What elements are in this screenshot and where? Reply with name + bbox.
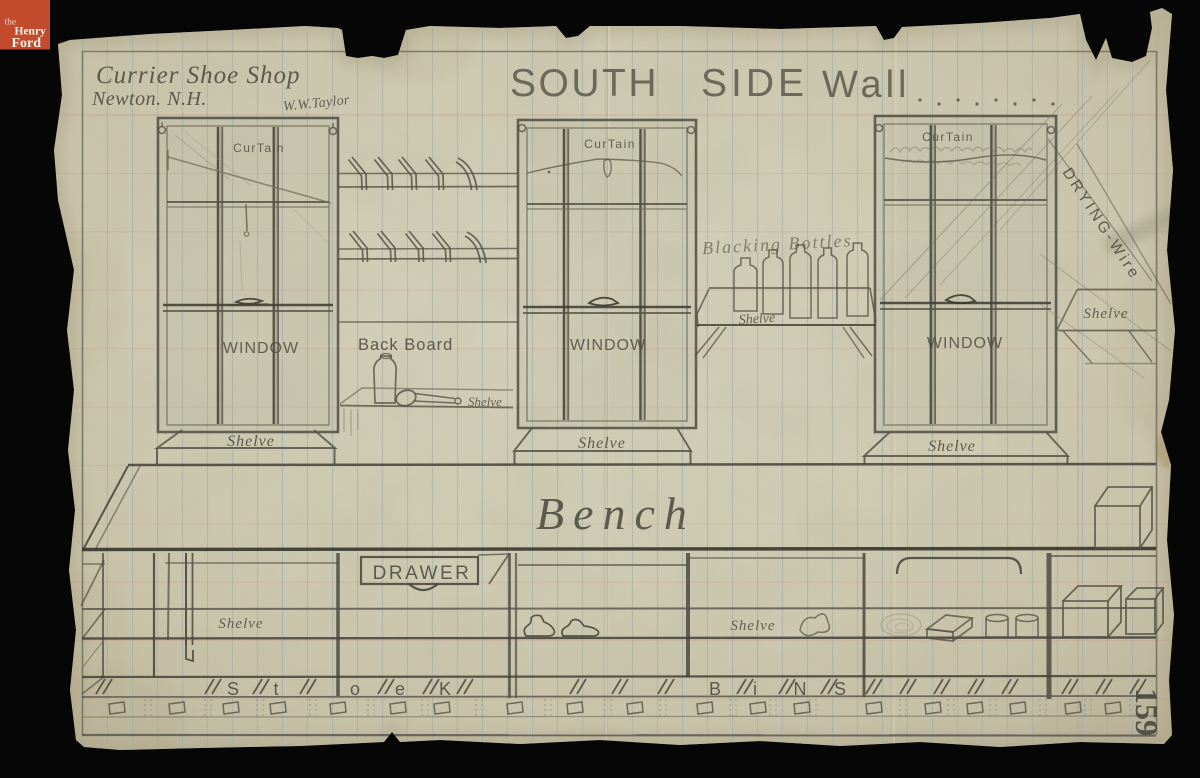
svg-text:Ford: Ford [12,36,42,51]
